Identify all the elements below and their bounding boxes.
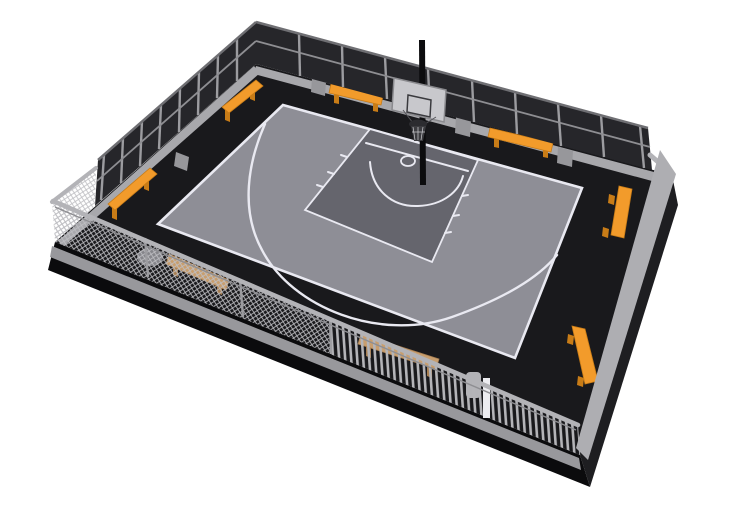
court-render: 3D render of a fenced outdoor basketball… (0, 0, 730, 509)
slat-junction-post (330, 318, 331, 354)
court-render-svg (0, 0, 730, 509)
